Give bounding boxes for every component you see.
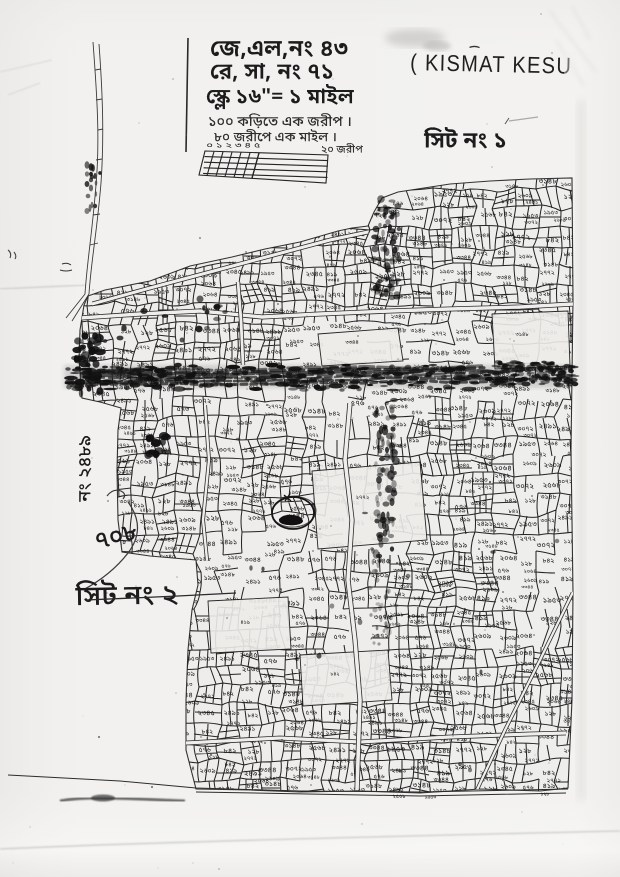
svg-text:( KISMAT KESU: ( KISMAT KESU xyxy=(410,49,573,79)
